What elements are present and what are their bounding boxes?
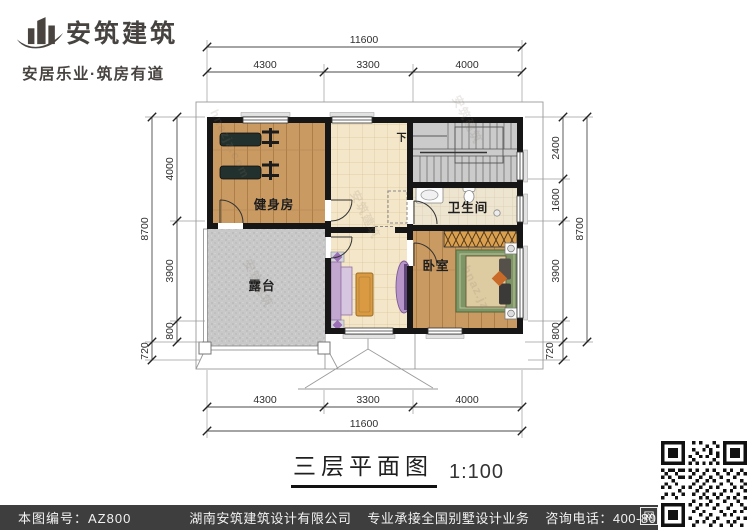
svg-text:8700: 8700	[139, 217, 151, 241]
svg-text:3300: 3300	[356, 394, 380, 406]
svg-text:4000: 4000	[164, 157, 176, 181]
drawing-number: 本图编号：AZ800	[18, 508, 131, 527]
coffee-table	[356, 273, 373, 316]
terrace-post	[199, 342, 211, 354]
stair-direction-label: 下	[397, 132, 408, 144]
svg-text:4300: 4300	[253, 394, 277, 406]
svg-text:11600: 11600	[350, 34, 379, 46]
svg-text:11600: 11600	[350, 418, 379, 430]
svg-text:3300: 3300	[356, 59, 380, 71]
svg-text:4000: 4000	[455, 59, 479, 71]
floor-plan: 下	[0, 0, 750, 500]
svg-text:3900: 3900	[164, 259, 176, 283]
svg-text:4300: 4300	[253, 59, 277, 71]
drawing-scale: 1:100	[449, 461, 504, 488]
web-badge: 网	[640, 507, 658, 525]
svg-text:4000: 4000	[455, 394, 479, 406]
svg-text:1600: 1600	[550, 188, 562, 212]
svg-text:3900: 3900	[550, 259, 562, 283]
floor-drain	[494, 210, 500, 216]
svg-text:2400: 2400	[550, 136, 562, 160]
bath-label: 卫生间	[448, 200, 489, 215]
footer-company: 湖南安筑建筑设计有限公司	[189, 508, 351, 527]
svg-text:8700: 8700	[574, 217, 586, 241]
drawing-title-text: 三层平面图	[291, 447, 437, 488]
bedroom-label: 卧室	[422, 258, 449, 273]
svg-text:800: 800	[164, 322, 176, 340]
pillow	[499, 284, 511, 305]
svg-text:720: 720	[139, 342, 151, 360]
footer-bar: 本图编号：AZ800 湖南安筑建筑设计有限公司 专业承接全国别墅设计业务 咨询电…	[0, 505, 750, 530]
drawing-title: 三层平面图 1:100	[291, 447, 504, 488]
terrace-post	[318, 342, 330, 354]
svg-text:800: 800	[550, 322, 562, 340]
gym-label: 健身房	[254, 197, 295, 212]
qr-code	[658, 437, 750, 530]
svg-text:720: 720	[544, 342, 556, 360]
footer-service: 专业承接全国别墅设计业务	[367, 508, 529, 527]
